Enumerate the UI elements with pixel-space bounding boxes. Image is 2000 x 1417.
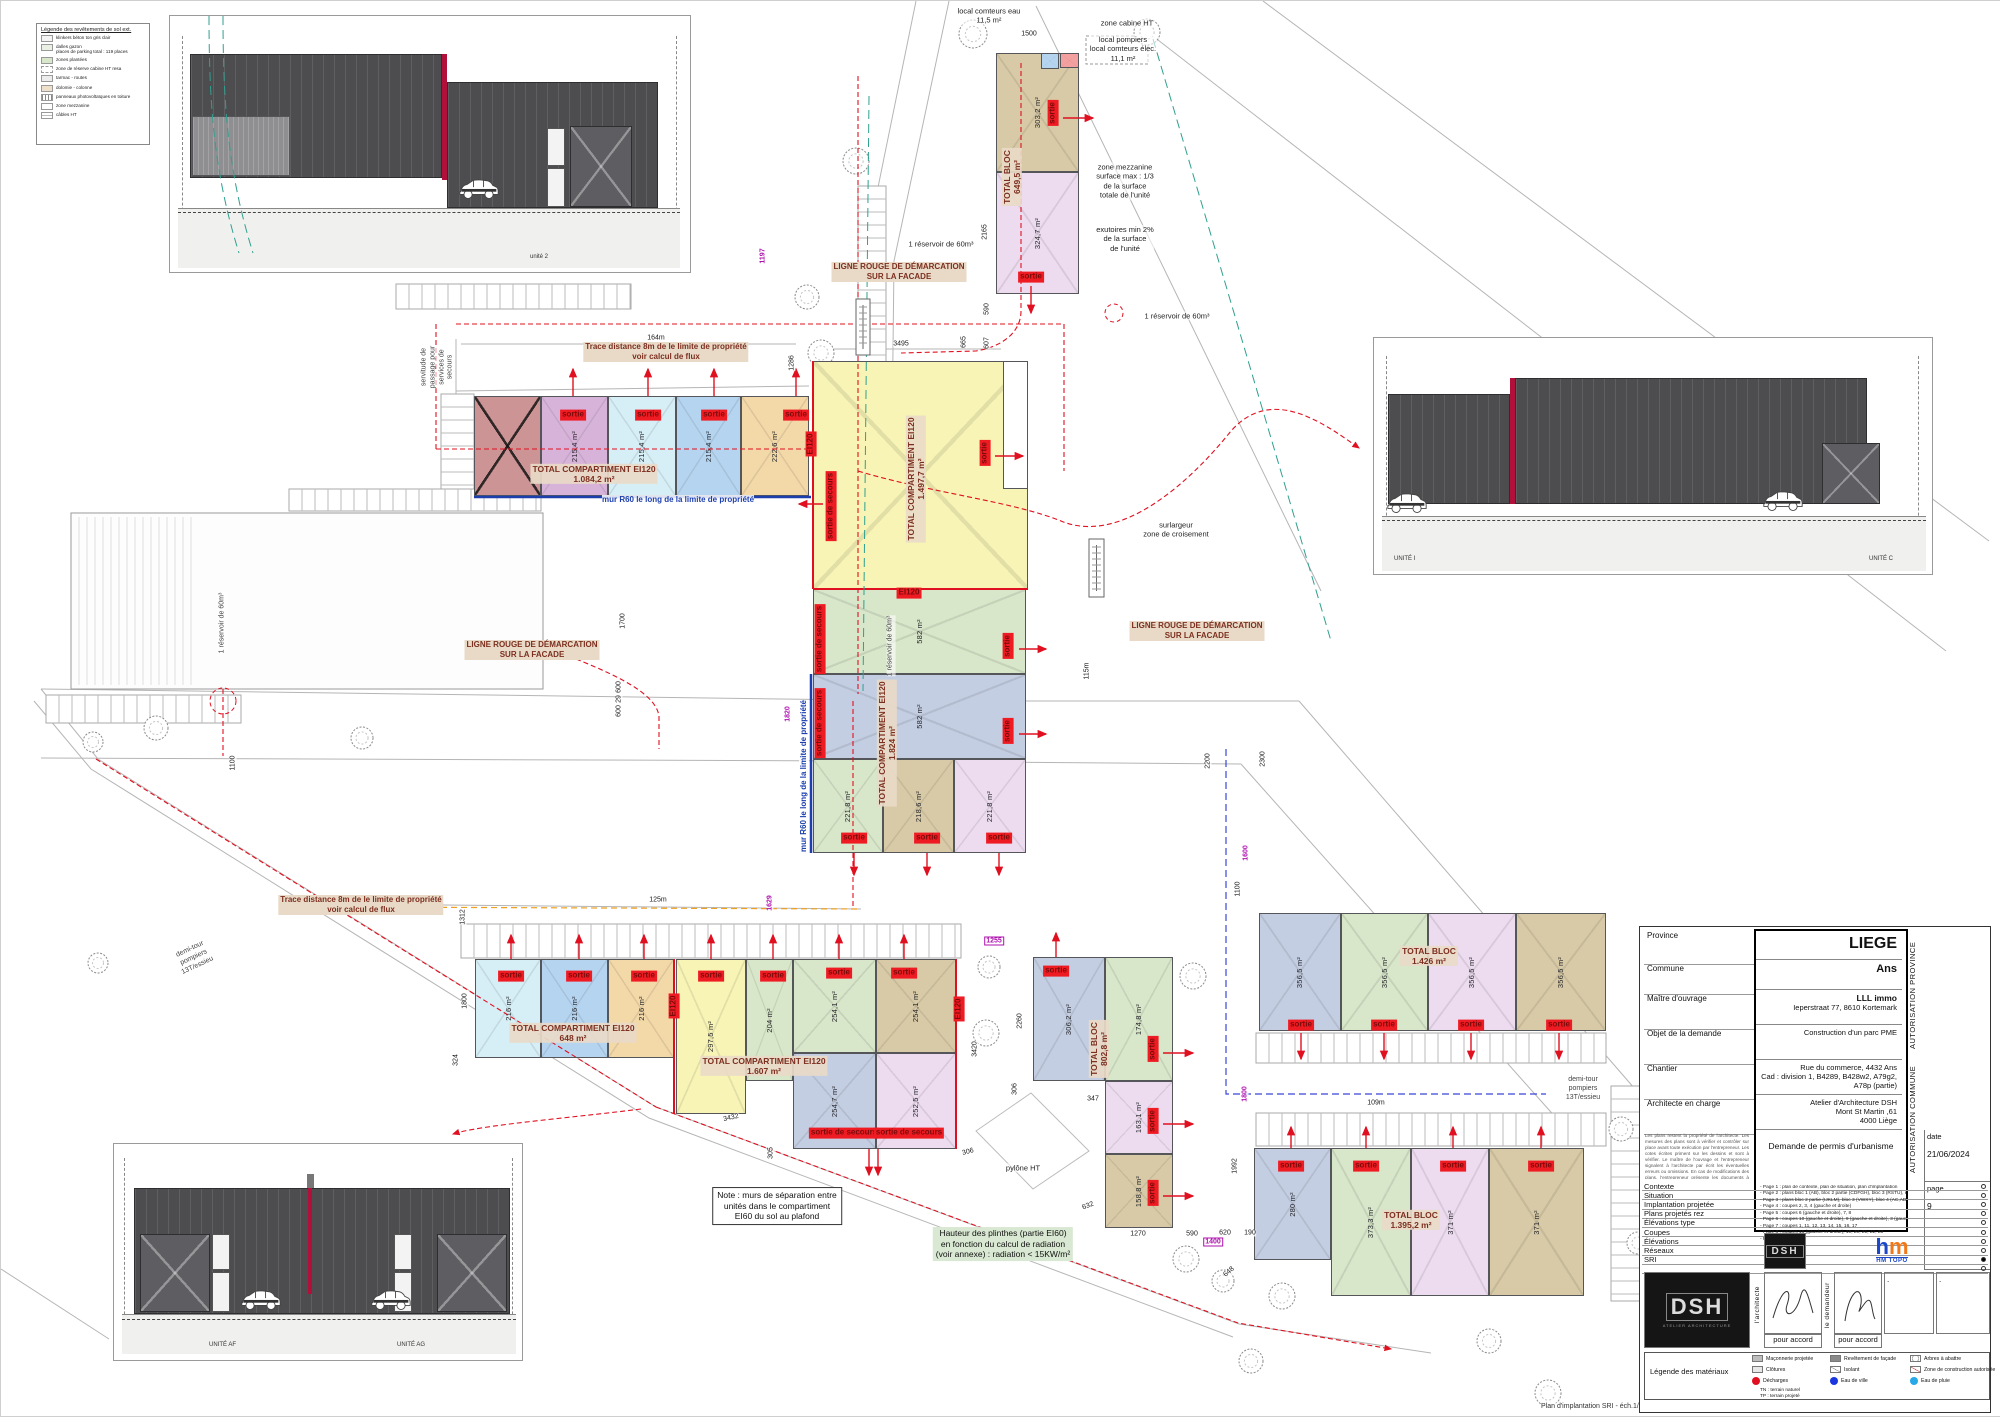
chimney	[307, 1174, 314, 1189]
dimension-label: 1629	[767, 895, 774, 911]
sortie-label: sortie	[783, 410, 809, 421]
authorisation-province-strip: AUTORISATION PROVINCE	[1908, 935, 1917, 1055]
dimension-label: 590	[984, 303, 991, 315]
dimension-label: 1800	[1242, 1086, 1249, 1102]
sortie-label: sortie	[1546, 1020, 1572, 1031]
dimension-label: 1820	[785, 706, 792, 722]
sortie-label: sortie	[1148, 1108, 1159, 1134]
garage-door	[1822, 443, 1880, 504]
legend-label: tarmac - routes	[56, 75, 87, 80]
plan-unit: 582 m²	[813, 589, 1026, 674]
dimension-label: 1312	[460, 909, 467, 925]
unit-area-label: 356,5 m²	[1467, 956, 1476, 987]
tree-icon	[1180, 963, 1206, 989]
checklist-label: Élévations	[1644, 1237, 1679, 1246]
sortie-label: sortie	[1278, 1161, 1304, 1172]
date-value: 21/06/2024	[1927, 1149, 1988, 1159]
titleblock-value-line: Atelier d'Architecture DSH	[1761, 1098, 1897, 1107]
unit-area-label: 222,6 m²	[770, 430, 779, 461]
facade-panel	[1388, 394, 1510, 504]
note-line: Trace distance 8m de le limite de propri…	[280, 895, 441, 905]
pages-list-line: - Page 2 : plans bloc 1 (AB), bloc 2 par…	[1760, 1191, 1906, 1197]
dimension-label: 2200	[1205, 753, 1212, 769]
sortie-label: sortie	[1528, 1161, 1554, 1172]
plan-note: Note : murs de séparation entreunités da…	[712, 1187, 842, 1225]
ground	[122, 1314, 516, 1354]
block-total-label: TOTAL COMPARTIMENT EI1201.497,7 m²	[906, 415, 926, 542]
sortie-label: sortie	[560, 410, 586, 421]
sortie-label: EI120	[954, 997, 965, 1022]
tree-icon	[843, 148, 869, 174]
signature-icon	[1845, 1292, 1875, 1321]
sortie-label: EI120	[806, 432, 817, 457]
material-swatch	[1910, 1377, 1918, 1385]
pour-accord-cell: pour accord	[1834, 1334, 1882, 1348]
note-line: surlargeur	[1143, 521, 1208, 530]
legend-label: klinkers béton ton gris clair	[56, 35, 110, 40]
applicant-signature-cell	[1834, 1272, 1882, 1334]
dimension-label: 1700	[620, 613, 627, 629]
legend-label: dalles gazon places de parking total : 1…	[56, 44, 128, 55]
material-swatch	[1752, 1377, 1760, 1385]
unit-area-label: 218,6 m²	[914, 790, 923, 821]
red-demarcation-stripe	[308, 1188, 312, 1294]
sortie-label: EI120	[897, 588, 922, 599]
unit-area-label: 254,7 m²	[830, 1085, 839, 1116]
dsh-logo-text: DSH	[1766, 1245, 1803, 1258]
note-line: Hauteur des plinthes (partie EI60)	[936, 1228, 1070, 1239]
hm-topo-logo: hm HM TOPO	[1866, 1233, 1918, 1269]
note-line: local pompiers	[1090, 35, 1156, 44]
block-total-label: TOTAL COMPARTIMENT EI1201.607 m²	[700, 1056, 827, 1076]
sortie-label: sortie	[891, 968, 917, 979]
block-total-area: 649,5 m²	[1012, 150, 1022, 204]
tree-icon	[1269, 1283, 1295, 1309]
unit-area-label: 216 m²	[503, 996, 512, 1021]
unit-area-label: 371 m²	[1445, 1210, 1454, 1235]
architect-signature-label: l'architecte	[1754, 1275, 1761, 1335]
dimension-label: 600	[616, 705, 623, 717]
surface-legend-item: zone mezzanine	[41, 103, 145, 110]
parcel-road-line	[41, 758, 863, 761]
titleblock-value-line: Mont St Martin ,61	[1761, 1107, 1897, 1116]
plan-note: 1 réservoir de 60m³	[887, 616, 896, 677]
unit-area-label: 158,8 m²	[1134, 1175, 1143, 1206]
dimension-label: 607	[984, 337, 991, 349]
block-total-area: 1.607 m²	[702, 1066, 825, 1076]
plan-unit: 174,8 m²	[1105, 957, 1173, 1081]
material-swatch	[1830, 1377, 1838, 1385]
material-label: Eau de ville	[1841, 1378, 1868, 1384]
block-total-label: TOTAL COMPARTIMENT EI1201.824 m²	[877, 679, 897, 806]
legend-swatch	[41, 112, 53, 119]
legend-swatch	[41, 57, 53, 64]
tree-icon	[88, 953, 108, 973]
block-total-area: 1.497,7 m²	[916, 417, 926, 540]
unchecked-circle-icon	[1981, 1230, 1986, 1235]
plan-unit: 356,5 m²	[1259, 913, 1341, 1031]
door	[547, 168, 565, 207]
legend-swatch	[41, 44, 53, 51]
titleblock-row-label: Architecte en charge	[1644, 1097, 1756, 1135]
dsh-logo-text: DSH	[1666, 1293, 1728, 1321]
material-item: Isolant	[1830, 1364, 1910, 1375]
material-label: Revêtement de façade	[1844, 1356, 1896, 1362]
note-line: LIGNE ROUGE DE DÉMARCATION	[834, 262, 965, 272]
titleblock-value-line: Cad : division 1, B4289, B428w2, A79g2,	[1761, 1072, 1897, 1081]
dimension-label: 1270	[1130, 1231, 1146, 1238]
unit-area-label: 252,5 m²	[911, 1085, 920, 1116]
sortie-label: EI120	[669, 994, 680, 1019]
note-line: pompiers	[1566, 1085, 1600, 1094]
dimension-label: 1600	[1243, 845, 1250, 861]
elevation-bottom-left: UNITÉ AF UNITÉ AG	[113, 1143, 523, 1361]
note-line: unités dans le compartiment	[717, 1201, 837, 1212]
titleblock-row-value: LLL immoIeperstraat 77, 8610 Kortemark	[1756, 990, 1902, 1025]
plan-unit: 582 m²	[813, 674, 1026, 759]
titleblock-row-value: LIEGE	[1756, 927, 1902, 960]
unit-area-label: 163,1 m²	[1134, 1102, 1143, 1133]
plan-caption: Plan d'implantation SRI - éch.1/500	[1541, 1403, 1651, 1410]
plan-unit: 356,5 m²	[1516, 913, 1606, 1031]
unchecked-circle-icon	[1981, 1211, 1986, 1216]
sortie-label: sortie	[760, 971, 786, 982]
unit-area-label: 356,5 m²	[1556, 956, 1565, 987]
legend-swatch	[41, 103, 53, 110]
sortie-label: sortie de secours	[815, 688, 826, 758]
material-item: Zone de construction autorisée	[1910, 1364, 1988, 1375]
checklist-label: Plans projetés rez	[1644, 1209, 1704, 1218]
ground	[178, 208, 680, 268]
garage-door	[570, 126, 632, 207]
block-total-area: 1.426 m²	[1402, 956, 1456, 966]
plan-unit	[1041, 53, 1059, 69]
note-line: Note : murs de séparation entre	[717, 1190, 837, 1201]
surface-legend-item: câbles HT	[41, 112, 145, 119]
material-swatch	[1910, 1355, 1921, 1362]
dimension-label: 665	[961, 336, 968, 348]
block-total-label: TOTAL BLOC1.395,2 m²	[1382, 1210, 1440, 1230]
material-item: Revêtement de façade	[1830, 1353, 1910, 1364]
hm-logo-m: m	[1889, 1234, 1909, 1259]
dimension-label: 306	[1012, 1083, 1019, 1095]
note-line: totale de l'unité	[1096, 190, 1154, 199]
sortie-label: sortie	[1003, 718, 1014, 744]
note-line: services de	[438, 346, 447, 388]
plan-note: servitude depassage pourservices desecou…	[421, 346, 456, 388]
plan-note: Hauteur des plinthes (partie EI60)en fon…	[933, 1227, 1073, 1261]
note-line: 1 réservoir de 60m³	[887, 616, 896, 677]
dimension-label: 164m	[647, 335, 665, 342]
permit-title: Demande de permis d'urbanisme	[1758, 1141, 1904, 1151]
block-total-title: TOTAL COMPARTIMENT EI120	[906, 417, 916, 540]
note-line: exutoires min 2%	[1096, 225, 1154, 234]
elevation-top-left: unité 2	[169, 15, 691, 273]
disclaimer-text: Les plans restent la propriété de l'arch…	[1645, 1133, 1749, 1179]
note-line: Trace distance 8m de le limite de propri…	[585, 342, 746, 352]
block-total-label: TOTAL BLOC1.426 m²	[1400, 946, 1458, 966]
dimension-label: 600	[616, 681, 623, 693]
unchecked-circle-icon	[1981, 1266, 1986, 1271]
legend-swatch	[41, 66, 53, 73]
legend-swatch	[41, 35, 53, 42]
legend-swatch	[41, 75, 53, 82]
dimension-label: 3420	[972, 1041, 979, 1057]
titleblock-row-label: Objet de la demande	[1644, 1027, 1756, 1065]
plan-note: mur R60 le long de la limite de propriét…	[602, 495, 754, 505]
unit-area-label: 215,4 m²	[637, 430, 646, 461]
architect-signature-cell	[1764, 1272, 1822, 1334]
materials-legend-title: Légende des matériaux	[1650, 1367, 1728, 1376]
tree-icon	[144, 716, 168, 740]
note-line: pylône HT	[1006, 1163, 1040, 1172]
unit-area-label: 303,2 m²	[1033, 97, 1042, 128]
titleblock-row-label: Commune	[1644, 962, 1756, 995]
note-line: LIGNE ROUGE DE DÉMARCATION	[1132, 621, 1263, 631]
elevation-unit-label: UNITÉ I	[1394, 556, 1415, 562]
plan-note: exutoires min 2%de la surfacede l'unité	[1096, 225, 1154, 253]
sortie-label: sortie	[1148, 1036, 1159, 1062]
checklist-label: Coupes	[1644, 1228, 1670, 1237]
tree-icon	[1609, 1117, 1633, 1141]
sortie-label: sortie	[631, 971, 657, 982]
plan-note: 1 réservoir de 60m³	[1144, 311, 1209, 320]
note-line: voir calcul de flux	[585, 352, 746, 362]
titleblock-value-line: Construction d'un parc PME	[1761, 1028, 1897, 1037]
titleblock-row-label: Chantier	[1644, 1062, 1756, 1100]
unchecked-circle-icon	[1981, 1184, 1986, 1189]
plan-note: 1 réservoir de 60m³	[908, 239, 973, 248]
block-total-area: 1.084,2 m²	[532, 474, 655, 484]
plan-note: LIGNE ROUGE DE DÉMARCATIONSUR LA FACADE	[832, 262, 967, 282]
checklist-label: Réseaux	[1644, 1246, 1674, 1255]
materials-legend-items: Maçonnerie projetéeRevêtement de façadeA…	[1752, 1353, 1988, 1386]
note-line: de l'unité	[1096, 244, 1154, 253]
checklist-label: Situation	[1644, 1191, 1673, 1200]
dimension-label: 125m	[649, 897, 667, 904]
unit-area-label: 582 m²	[915, 619, 924, 644]
material-label: Zone de construction autorisée	[1924, 1367, 1995, 1373]
signature-icon	[1773, 1290, 1813, 1318]
dimension-label: 1800	[462, 993, 469, 1009]
plan-unit: 297,5 m²	[676, 959, 746, 1114]
legend-label: câbles HT	[56, 112, 77, 117]
checklist-label: Implantation projetée	[1644, 1200, 1714, 1209]
parking-stalls	[461, 924, 961, 958]
sortie-label: sortie	[566, 971, 592, 982]
note-line: surface max : 1/3	[1096, 172, 1154, 181]
block-total-label: TOTAL COMPARTIMENT EI1201.084,2 m²	[530, 464, 657, 484]
site-plan-sheet: Légende des revêtements de sol ext. klin…	[0, 0, 2000, 1417]
unit-area-label: 215,4 m²	[704, 430, 713, 461]
plan-note: zone mezzaninesurface max : 1/3de la sur…	[1096, 162, 1154, 200]
checklist-item: SRI	[1642, 1256, 1988, 1265]
material-label: Isolant	[1844, 1367, 1859, 1373]
unit-area-label: 356,5 m²	[1380, 956, 1389, 987]
block-total-title: TOTAL BLOC	[1402, 946, 1456, 956]
material-item: Eau de ville	[1830, 1375, 1910, 1386]
titleblock-row-value: Atelier d'Architecture DSHMont St Martin…	[1756, 1095, 1902, 1130]
sortie-label: sortie	[914, 833, 940, 844]
plan-note: LIGNE ROUGE DE DÉMARCATIONSUR LA FACADE	[1130, 621, 1265, 641]
plan-unit: 356,5 m²	[1428, 913, 1516, 1031]
note-line: mur R60 le long de la limite de propriét…	[602, 495, 754, 505]
surface-legend-item: dalles gazon places de parking total : 1…	[41, 44, 145, 55]
sortie-label: sortie	[701, 410, 727, 421]
dimension-label: 3495	[893, 341, 909, 348]
tree-icon	[1239, 1349, 1263, 1373]
elevation-unit-label: UNITÉ AG	[397, 1342, 425, 1348]
material-swatch	[1830, 1366, 1841, 1373]
plan-note: local comteurs eau11,5 m²	[958, 7, 1021, 26]
plan-unit: 158,8 m²	[1105, 1154, 1173, 1228]
sortie-label: sortie	[1458, 1020, 1484, 1031]
sortie-label: sortie	[980, 440, 991, 466]
unit-area-label: 221,8 m²	[843, 790, 852, 821]
unit-area-label: 215,4 m²	[570, 430, 579, 461]
note-line: 13T/essieu	[1566, 1093, 1600, 1102]
note-line: SUR LA FACADE	[834, 272, 965, 282]
block-total-title: TOTAL COMPARTIMENT EI120	[511, 1023, 634, 1033]
surface-legend-title: Légende des revêtements de sol ext.	[41, 27, 145, 33]
titleblock-row-label: Province	[1644, 929, 1756, 965]
dsh-logo-large: DSH ATELIER ARCHITECTURE	[1644, 1272, 1750, 1348]
block-total-area: 1.824 m²	[887, 681, 897, 804]
dimension-label: 1286	[789, 355, 796, 371]
checked-dot-icon	[1981, 1257, 1986, 1262]
dsh-logo-small: DSH	[1764, 1233, 1806, 1269]
dimension-label: 115m	[1084, 663, 1091, 680]
surface-legend-item: klinkers béton ton gris clair	[41, 35, 145, 42]
unchecked-circle-icon	[1981, 1202, 1986, 1207]
legend-label: zones plantées	[56, 57, 87, 62]
dimension-label: 1992	[1232, 1158, 1239, 1174]
sortie-label: sortie	[1148, 1180, 1159, 1206]
tree-icon	[978, 956, 1000, 978]
titleblock-value-line: Ieperstraat 77, 8610 Kortemark	[1761, 1003, 1897, 1012]
unit-area-label: 582 m²	[915, 704, 924, 729]
dimension-label: 1100	[230, 755, 237, 770]
dimension-label: 1100	[1235, 881, 1242, 896]
block-total-title: TOTAL BLOC	[1384, 1210, 1438, 1220]
unit-area-label: 216 m²	[570, 996, 579, 1021]
sortie-label: sortie	[841, 833, 867, 844]
sortie-label: sortie	[1048, 100, 1059, 126]
plan-unit	[1003, 361, 1028, 489]
dimension-label: 620	[1219, 1230, 1231, 1237]
material-item: Eau de pluie	[1910, 1375, 1988, 1386]
block-total-label: TOTAL BLOC802,8 m²	[1089, 1020, 1109, 1078]
dimension-label: 305	[768, 1147, 775, 1159]
parking-stalls	[46, 695, 241, 723]
material-swatch	[1910, 1366, 1921, 1373]
titleblock-value-line: Ans	[1761, 963, 1897, 975]
note-line: passage pour	[429, 346, 438, 388]
tree-icon	[1477, 1329, 1501, 1353]
dimension-label: 324	[453, 1054, 460, 1066]
legend-swatch	[41, 94, 53, 101]
material-swatch	[1752, 1355, 1763, 1362]
dimension-label: 109m	[1367, 1100, 1385, 1107]
note-line: secours	[447, 346, 456, 388]
note-line: demi-tour	[1566, 1076, 1600, 1085]
unit-area-label: 324,7 m²	[1033, 217, 1042, 248]
surface-legend-item: panneaux photovoltaïques en toiture	[41, 94, 145, 101]
tp-label: TP : terrain projeté	[1760, 1394, 1800, 1399]
tree-icon	[1173, 1246, 1199, 1272]
surface-legend-item: zone de réserve cabine HT resa	[41, 66, 145, 73]
legend-label: panneaux photovoltaïques en toiture	[56, 94, 130, 99]
plan-note: demi-tourpompiers13T/essieu	[1566, 1076, 1600, 1102]
unit-area-label: 371 m²	[1532, 1210, 1541, 1235]
material-item: Maçonnerie projetée	[1752, 1353, 1830, 1364]
dimension-label: 590	[1186, 1231, 1198, 1238]
note-line: en fonction du calcul de radiation	[936, 1239, 1070, 1250]
garage-door	[140, 1234, 210, 1312]
sortie-label: sortie de secours	[815, 604, 826, 674]
plan-note: LIGNE ROUGE DE DÉMARCATIONSUR LA FACADE	[465, 640, 600, 660]
dimension-label: 1255	[984, 937, 1004, 946]
plan-note: surlargeurzone de croisement	[1143, 521, 1208, 540]
material-label: Clôtures	[1766, 1367, 1785, 1373]
checklist-label: SRI	[1644, 1255, 1657, 1264]
dimension-label: 347	[1087, 1096, 1099, 1103]
tree-icon	[351, 727, 373, 749]
unit-area-label: 254,1 m²	[830, 990, 839, 1021]
date-label: date	[1927, 1132, 1988, 1141]
sortie-label: sortie	[635, 410, 661, 421]
garage-door	[437, 1234, 507, 1312]
block-total-area: 1.395,2 m²	[1384, 1220, 1438, 1230]
sortie-label: sortie	[1003, 633, 1014, 659]
unit-area-label: 174,8 m²	[1134, 1003, 1143, 1034]
sortie-label: sortie de secours	[826, 471, 837, 541]
titleblock-value-line: LIEGE	[1761, 935, 1897, 953]
plan-note: mur R60 le long de la limite de propriét…	[799, 700, 809, 852]
sortie-label: sortie	[986, 833, 1012, 844]
note-line: 1 réservoir de 60m³	[1144, 311, 1209, 320]
dimension-label: 2300	[1260, 751, 1267, 767]
ground-line	[122, 1319, 516, 1320]
titleblock-row-value: Construction d'un parc PME	[1756, 1025, 1902, 1060]
note-line: 11,5 m²	[958, 16, 1021, 25]
sortie-label: sortie	[1440, 1161, 1466, 1172]
unchecked-circle-icon	[1981, 1220, 1986, 1225]
dsh-logo-subtext: ATELIER ARCHITECTURE	[1663, 1323, 1732, 1328]
hm-logo-sub: HM TOPO	[1876, 1257, 1907, 1264]
note-line: de la surface	[1096, 181, 1154, 190]
ground	[1382, 516, 1926, 571]
door	[394, 1234, 412, 1270]
sortie-label: sortie	[698, 971, 724, 982]
sortie-label: sortie	[1043, 966, 1069, 977]
titleblock-value-line: LLL immo	[1761, 993, 1897, 1003]
block-total-title: TOTAL COMPARTIMENT EI120	[702, 1056, 825, 1066]
unchecked-circle-icon	[1981, 1248, 1986, 1253]
legend-label: zone mezzanine	[56, 103, 89, 108]
block-total-title: TOTAL BLOC	[1089, 1022, 1099, 1076]
block-total-area: 648 m²	[511, 1033, 634, 1043]
parcel-road-line	[1, 1269, 109, 1339]
plan-note: 1 réservoir de 60m³	[219, 593, 228, 654]
material-label: Eau de pluie	[1921, 1378, 1950, 1384]
tree-icon	[83, 732, 103, 752]
plan-unit	[1060, 53, 1079, 68]
surface-legend-item: zones plantées	[41, 57, 145, 64]
sortie-label: sortie	[826, 968, 852, 979]
surface-legend: Légende des revêtements de sol ext. klin…	[36, 23, 150, 145]
note-line: LIGNE ROUGE DE DÉMARCATION	[467, 640, 598, 650]
